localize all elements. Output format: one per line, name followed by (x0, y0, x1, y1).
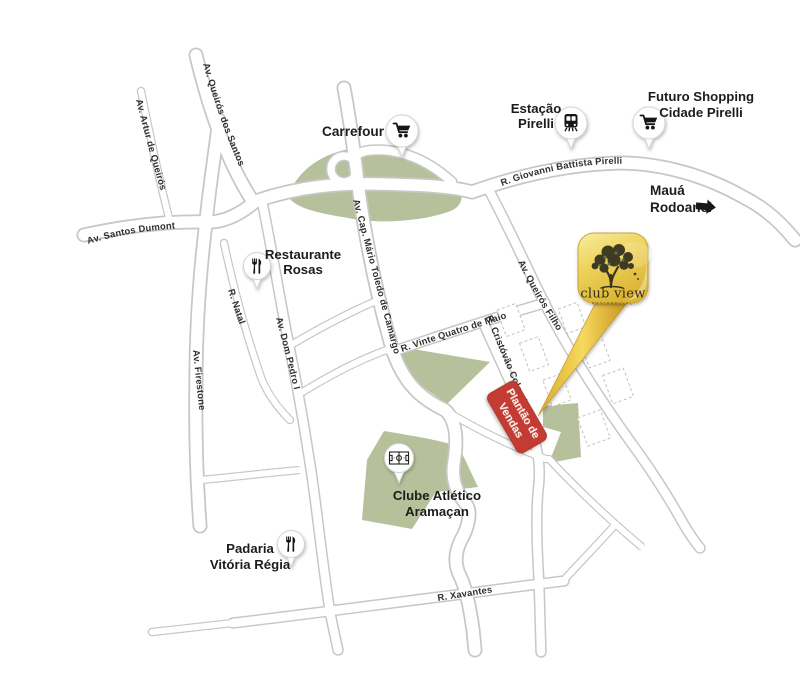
clube-atletico-label-line1: Clube Atlético (393, 488, 481, 503)
carrefour-label: Carrefour (322, 124, 385, 139)
futuro-shopping-label-line1: Futuro Shopping (648, 89, 754, 104)
soccer-field-icon (390, 452, 409, 464)
svg-text:Av. Artur de Queirós: Av. Artur de Queirós (134, 98, 169, 192)
padaria-label-line2: Vitória Régia (210, 557, 291, 572)
padaria-label-line1: Padaria (226, 541, 274, 556)
road-grid-1 (291, 301, 376, 345)
street-label-queiros-filho: Av. Queirós Filho (516, 258, 565, 332)
logo-tagline: RESIDENCIAL (592, 302, 634, 306)
svg-text:R. Natal: R. Natal (226, 287, 248, 325)
street-label-natal: R. Natal (226, 287, 248, 325)
road-grid-2 (301, 349, 389, 393)
svg-text:Av. Queirós Filho: Av. Queirós Filho (516, 258, 565, 332)
restaurante-rosas-label-line2: Rosas (283, 262, 323, 277)
road-xavantes (233, 581, 564, 623)
location-map: Av. Queirós dos Santos Av. Artur de Quei… (0, 0, 800, 698)
maua-rodoanel-label-line1: Mauá (650, 183, 685, 198)
street-label-artur-de-queiros: Av. Artur de Queirós (134, 98, 169, 192)
svg-text:Av. Cap. Mário Toledo de Camar: Av. Cap. Mário Toledo de Camargo (351, 198, 403, 355)
clube-atletico-label-line2: Aramaçan (405, 504, 469, 519)
road-diag-2 (549, 459, 642, 547)
estacao-pirelli-label-line1: Estação (511, 101, 562, 116)
small-green-area (543, 403, 581, 463)
road-branch-ne (563, 526, 614, 581)
road-branch (206, 120, 219, 222)
sales-banner: Plantão de Vendas (485, 379, 548, 455)
restaurante-rosas-label-line1: Restaurante (265, 247, 341, 262)
logo-name: club view (580, 287, 645, 302)
estacao-pirelli-label-line2: Pirelli (518, 116, 554, 131)
club-view-logo: club view RESIDENCIAL (578, 233, 651, 306)
street-label-camargo: Av. Cap. Mário Toledo de Camargo (351, 198, 403, 355)
futuro-shopping-label-line2: Cidade Pirelli (659, 105, 743, 120)
